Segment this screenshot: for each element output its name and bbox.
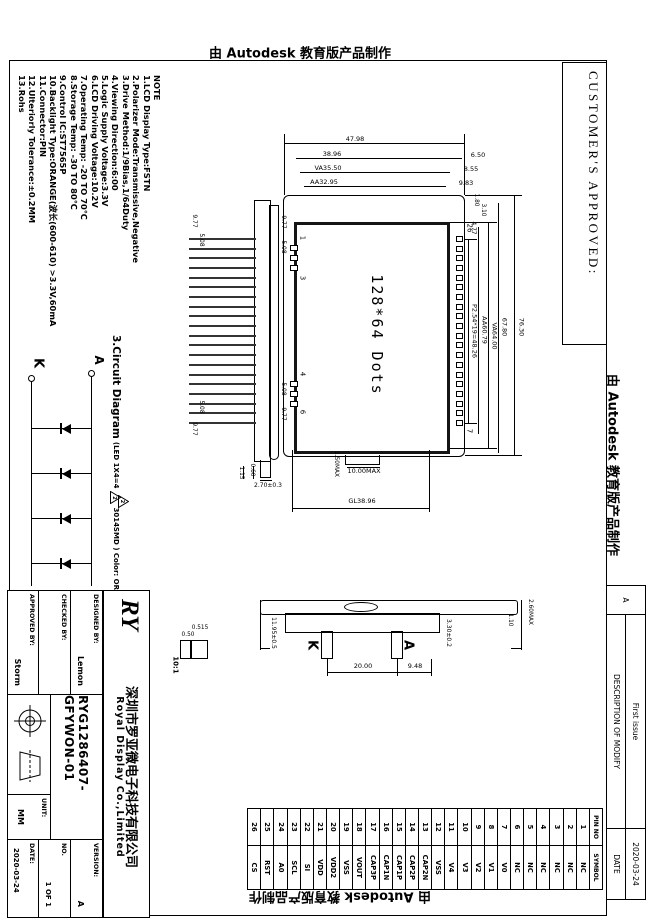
- pin-number: 23: [288, 809, 300, 846]
- pin-number: 8: [485, 809, 497, 846]
- lcd-pad: [290, 381, 298, 387]
- pin-symbol: CAP1P: [393, 846, 405, 889]
- dim-line: [285, 143, 465, 144]
- autodesk-watermark-top: 由 Autodesk 教育版产品制作: [605, 374, 624, 556]
- led-diode-icon: [62, 559, 71, 569]
- dim-label-aa_w: AA60.79: [481, 316, 488, 344]
- note-line: 11.Connector:PIN: [37, 75, 47, 495]
- backlight-oval-cutout: [344, 602, 378, 612]
- dim-line: [521, 600, 522, 650]
- approved-by-label: APPROVED BY:: [28, 594, 35, 646]
- projection-symbol-icon: [9, 695, 50, 793]
- pin-lead: [189, 344, 256, 346]
- pin-table-header: PIN NO SYMBOL: [589, 809, 602, 889]
- pin-lead: [189, 248, 256, 250]
- title-block: RY 深圳市罗亚微电子科技有限公司 Royal Display Co.,Limi…: [7, 590, 150, 918]
- pin-table-row: 15CAP1P: [392, 809, 405, 889]
- pin-table-row: 11V4: [444, 809, 457, 889]
- note-line: 7.Operating Temp: -20 TO 70℃: [79, 75, 89, 495]
- dim-label-anode: A: [93, 355, 105, 364]
- pin-number: 5: [524, 809, 536, 846]
- pin-table-row: 10V3: [457, 809, 470, 889]
- led-cathode-bar: [61, 558, 63, 569]
- pin-number: 20: [327, 809, 339, 846]
- lcd-pad: [456, 362, 463, 368]
- unit-label: UNIT:: [40, 798, 47, 817]
- pin-table-row: 6NC: [510, 809, 523, 889]
- pin-symbol: V3: [458, 846, 470, 889]
- pin-symbol: A0: [274, 846, 286, 889]
- pin-table-row: 19VSS: [339, 809, 352, 889]
- dim-line: [464, 239, 477, 240]
- lcd-pad: [456, 391, 463, 397]
- lcd-pad: [456, 401, 463, 407]
- dim-label-tab_t: 1.50MAX: [332, 451, 338, 477]
- pin-symbol: NC: [564, 846, 576, 889]
- pin-detail-rect-1: [190, 640, 208, 659]
- pin-symbol: V0: [498, 846, 510, 889]
- pin-number: 6: [511, 809, 523, 846]
- lcd-pad: [456, 342, 463, 348]
- pin-table-header-symbol: SYMBOL: [590, 846, 602, 889]
- pin-number: 18: [353, 809, 365, 846]
- pin-table-row: 7V0: [497, 809, 510, 889]
- pin-lead: [189, 286, 256, 288]
- pin-symbol: CAP2N: [419, 846, 431, 889]
- dim-label-a: 0.515: [192, 626, 209, 632]
- pin-table-row: 21VDD: [313, 809, 326, 889]
- company-banner: RY 深圳市罗亚微电子科技有限公司 Royal Display Co.,Limi…: [103, 591, 149, 917]
- lcd-pad: [456, 323, 463, 329]
- dim-label-off: 9.48: [408, 663, 422, 670]
- pin-table-row: 24A0: [273, 809, 286, 889]
- dim-label-off2: 8.55: [464, 166, 478, 173]
- dim-line: [398, 672, 432, 673]
- pin-symbol: V1: [485, 846, 497, 889]
- dim-line: [296, 158, 462, 159]
- pin-table-row: 3NC: [549, 809, 562, 889]
- pin-detail-rect-2: [180, 640, 192, 659]
- dim-label-b4: 6: [299, 410, 306, 414]
- pin-lead: [189, 257, 256, 259]
- revision-description-value: First issue: [626, 615, 646, 828]
- dim-line: [429, 450, 430, 512]
- pin-table-row: 17CAP3P: [365, 809, 378, 889]
- pin-table-row: 8V1: [484, 809, 497, 889]
- revision-date-value: 2020-03-24: [626, 829, 646, 899]
- dim-label-a: 9.77: [191, 214, 197, 227]
- lcd-resolution-text: 128*64 Dots: [368, 274, 386, 395]
- pin-symbol: NC: [577, 846, 589, 889]
- dim-line: [468, 239, 469, 424]
- circuit-cathode-terminal: [28, 375, 35, 382]
- pin-table-row: 9V2: [471, 809, 484, 889]
- lcd-pad: [456, 275, 463, 281]
- dim-label-c: 5.08: [198, 400, 204, 413]
- drawing-page: 由 Autodesk 教育版产品制作 由 Autodesk 教育版产品制作 由 …: [0, 0, 650, 920]
- pin-symbol: CS: [248, 846, 260, 889]
- pin-lead: [189, 383, 256, 385]
- dim-line: [465, 455, 522, 456]
- pin-number: 2: [564, 809, 576, 846]
- pin-number: 1: [577, 809, 589, 846]
- pin-lead: [189, 325, 256, 327]
- led-cathode-bar: [61, 468, 63, 479]
- pin-symbol: VOUT: [353, 846, 365, 889]
- pin-number: 19: [340, 809, 352, 846]
- pin-symbol: VSS: [432, 846, 444, 889]
- dim-label-h: 11.95±0.5: [270, 617, 276, 649]
- dim-label-off3: 9.83: [459, 180, 473, 187]
- projection-symbols-cell: [8, 694, 51, 794]
- pin-table-row: 1NC: [576, 809, 589, 889]
- side-view-pcb: [254, 200, 271, 462]
- date-label: DATE:: [28, 843, 35, 864]
- pin-table-row: 12VSS: [431, 809, 444, 889]
- circuit-spec-pre: (LED 1X4=4: [112, 442, 120, 489]
- backlight-housing: [285, 613, 440, 633]
- dim-line: [260, 600, 261, 650]
- pin-table-header-no: PIN NO: [590, 809, 602, 846]
- dim-label-grp2_b: 9.77: [280, 407, 286, 420]
- pin-number: 26: [248, 809, 260, 846]
- dim-line: [450, 448, 497, 449]
- dim-label-b3: 4: [299, 372, 306, 376]
- circuit-title-text: 3.Circuit Diagram: [110, 335, 122, 439]
- pin-lead: [189, 267, 256, 269]
- note-line: 13.Rohs: [16, 75, 26, 495]
- revision-col-date: 2020-03-24 DATE: [607, 829, 645, 899]
- dim-label-grp1_a: 9.77: [280, 215, 286, 228]
- note-line: 2.Polarizer Mode:Transmissive,Negative: [131, 75, 141, 495]
- sheet-no-value: 1 OF 1: [44, 882, 52, 907]
- pin-number: 21: [314, 809, 326, 846]
- dim-label-a: A: [402, 640, 415, 650]
- pin-symbol: CAP2P: [406, 846, 418, 889]
- pin-number: 3: [550, 809, 562, 846]
- pin-lead: [189, 335, 256, 337]
- pin-table-row: 2NC: [563, 809, 576, 889]
- pin-number: 12: [432, 809, 444, 846]
- notes-title: NOTE: [152, 75, 162, 495]
- revision-table: A First issue DESCRIPTION OF MODIFY 2020…: [606, 585, 646, 900]
- pin-table-row: 20VDD2: [326, 809, 339, 889]
- dim-label-pad_pitch: P2.54*19=48.26: [471, 304, 478, 358]
- dim-line: [397, 659, 398, 676]
- dim-label-gl: GL38.96: [348, 498, 375, 505]
- version-cell: VERSION: A: [71, 839, 103, 917]
- part-number: RYG1286407-GFYWON-01: [51, 694, 103, 839]
- pin-symbol: SI: [301, 846, 313, 889]
- pin-symbol: NC: [524, 846, 536, 889]
- pin-lead: [189, 393, 256, 395]
- dim-label-g1: 1.10: [506, 614, 512, 627]
- pin-lead: [189, 277, 256, 279]
- pin-lead: [189, 296, 256, 298]
- sheet-no-label: NO.: [60, 843, 67, 856]
- unit-cell: UNIT: MM: [8, 794, 51, 839]
- circuit-anode-rail: [91, 376, 92, 586]
- pin-number: 4: [537, 809, 549, 846]
- lcd-pad: [456, 255, 463, 261]
- revision-date-header: DATE: [607, 829, 626, 899]
- pin-lead: [189, 364, 256, 366]
- pin-table-row: 13CAP2N: [418, 809, 431, 889]
- pin-symbol: VSS: [340, 846, 352, 889]
- lcd-pad: [290, 265, 298, 271]
- led-cathode-bar: [61, 423, 63, 434]
- dim-line: [328, 672, 398, 673]
- dim-label-cathode: K: [32, 358, 45, 368]
- dim-label-overall_w: 76.30: [518, 318, 525, 337]
- dim-label-pad_off2: 3.10: [479, 204, 485, 217]
- led-diode-icon: [62, 469, 71, 479]
- lcd-pad: [456, 265, 463, 271]
- approved-by-cell: APPROVED BY: Storm: [8, 591, 39, 694]
- dim-label-overall_h: 47.98: [346, 136, 365, 143]
- sheet-no-cell: NO. 1 OF 1: [39, 839, 71, 917]
- pin-number: 9: [472, 809, 484, 846]
- pin-number: 22: [301, 809, 313, 846]
- lcd-pad: [456, 313, 463, 319]
- pin-lead: [189, 354, 256, 356]
- pin-lead: [189, 374, 256, 376]
- lcd-pad: [456, 333, 463, 339]
- dim-label-grp1_b: 5.08: [280, 240, 286, 253]
- lcd-pad: [456, 236, 463, 242]
- dim-label-b: 0.50: [182, 633, 195, 639]
- dim-label-va_h: VA35.50: [314, 165, 341, 172]
- revision-description-header: DESCRIPTION OF MODIFY: [607, 615, 626, 828]
- pin-number: 13: [419, 809, 431, 846]
- lcd-pad: [290, 401, 298, 407]
- dim-label-pad_off1: 1.80: [472, 194, 478, 207]
- pin-symbol: RST: [261, 846, 273, 889]
- pin-table-row: 23SCL: [287, 809, 300, 889]
- dim-line: [327, 659, 328, 676]
- dim-label-tab_w: 10.00MAX: [347, 468, 380, 475]
- triangle-marker-number: 2: [120, 500, 126, 503]
- dim-line: [260, 648, 270, 649]
- revision-col-description: First issue DESCRIPTION OF MODIFY: [607, 615, 645, 829]
- designed-by-label: DESIGNED BY:: [92, 594, 99, 644]
- dim-line: [300, 172, 450, 173]
- pin-number: 17: [366, 809, 378, 846]
- dim-line: [511, 648, 522, 649]
- dim-line: [292, 450, 293, 512]
- dim-label-glass_w2: 67.80: [501, 318, 508, 337]
- dim-label-b: 5.08: [198, 233, 204, 246]
- dim-line: [464, 423, 477, 424]
- lcd-pad: [456, 420, 463, 426]
- approved-by-value: Storm: [13, 659, 22, 686]
- circuit-diagram-title: 3.Circuit Diagram (LED 1X4=4 2 3014SMD )…: [110, 335, 122, 612]
- pin-table-row: 22SI: [300, 809, 313, 889]
- dim-line: [431, 659, 432, 676]
- customer-approved-label: CUSTOMER'S APPROVED:: [585, 71, 601, 276]
- pin-table-row: 4NC: [536, 809, 549, 889]
- designed-by-value: Lemon: [76, 656, 85, 686]
- unit-value: MM: [16, 809, 25, 825]
- date-value: 2020-03-24: [12, 848, 20, 893]
- pin-table-row: 16CAP1N: [379, 809, 392, 889]
- autodesk-watermark-left: 由 Autodesk 教育版产品制作: [209, 43, 391, 62]
- lcd-pad: [456, 352, 463, 358]
- lcd-pad: [456, 381, 463, 387]
- led-diode-icon: [62, 514, 71, 524]
- pin-lead: [189, 422, 256, 424]
- dim-label-g2: 2.60MAX: [526, 599, 532, 625]
- designed-by-cell: DESIGNED BY: Lemon: [71, 591, 103, 694]
- pin-symbol: CAP3P: [366, 846, 378, 889]
- lcd-pad: [290, 255, 298, 261]
- dim-label-grp2_a: 5.08: [280, 382, 286, 395]
- dim-label-top_left: 26: [466, 224, 473, 233]
- dim-line: [304, 186, 446, 187]
- led-diode-icon: [62, 424, 71, 434]
- triangle-marker-number: 2: [112, 496, 118, 499]
- lcd-pad: [456, 410, 463, 416]
- dim-label-off1: 6.50: [471, 152, 485, 159]
- circuit-anode-terminal: [88, 370, 95, 377]
- pin-table-row: 18VOUT: [352, 809, 365, 889]
- checked-by-cell: CHECKED BY:: [39, 591, 71, 694]
- dim-line: [514, 195, 515, 456]
- side-view-extension: [260, 460, 271, 478]
- date-cell: DATE: 2020-03-24: [8, 839, 39, 917]
- lcd-pad: [290, 245, 298, 251]
- dim-label-glass_h: 38.96: [323, 151, 342, 158]
- dim-label-top_right: 7: [466, 429, 473, 433]
- triangle-marker-icon: 2: [119, 495, 130, 508]
- pin-number: 11: [445, 809, 457, 846]
- pin-number: 16: [380, 809, 392, 846]
- lcd-pad: [456, 304, 463, 310]
- dim-label-f: 1.15: [237, 467, 243, 480]
- drawing-sheet: 由 Autodesk 教育版产品制作 由 Autodesk 教育版产品制作 由 …: [0, 0, 650, 920]
- pin-symbol: SCL: [288, 846, 300, 889]
- dim-label-va_w: VA64.00: [491, 322, 498, 349]
- pin-symbol: NC: [537, 846, 549, 889]
- dim-label-t: 3.30±0.2: [445, 619, 451, 647]
- company-name-cn: 深圳市罗亚微电子科技有限公司: [123, 643, 142, 911]
- pin-number: 15: [393, 809, 405, 846]
- led-cathode-bar: [61, 513, 63, 524]
- pin-number: 24: [274, 809, 286, 846]
- autodesk-watermark-right: 由 Autodesk 教育版产品制作: [249, 889, 431, 908]
- revision-rev: A: [607, 586, 645, 614]
- note-line: 5.Logic Supply Voltage:3.3V: [100, 75, 110, 495]
- lcd-pad: [456, 372, 463, 378]
- pin-number: 10: [458, 809, 470, 846]
- dim-label-scale: 10:1: [172, 656, 179, 673]
- dim-label-b2: 3: [299, 276, 306, 280]
- lcd-pad: [456, 284, 463, 290]
- dim-label-aa_h: AA32.95: [310, 179, 338, 186]
- pin-table-row: 26CS: [248, 809, 260, 889]
- company-logo: RY: [115, 599, 143, 631]
- dim-label-b1: 1: [299, 236, 306, 240]
- pin-symbol: V4: [445, 846, 457, 889]
- dim-line: [292, 508, 430, 509]
- dim-label-g: 0.60: [248, 464, 254, 477]
- dim-label-d: 9.77: [191, 422, 197, 435]
- circuit-cathode-rail: [31, 381, 32, 586]
- pin-symbol: VDD2: [327, 846, 339, 889]
- backlight-pin-cathode: [321, 631, 333, 659]
- pin-symbol: VDD: [314, 846, 326, 889]
- pin-symbol: NC: [511, 846, 523, 889]
- pin-table-row: 5NC: [523, 809, 536, 889]
- pin-symbol: CAP1N: [380, 846, 392, 889]
- customer-approved-box: CUSTOMER'S APPROVED:: [562, 62, 607, 345]
- version-value: A: [76, 901, 85, 907]
- dim-label-k: K: [306, 640, 319, 650]
- pin-table-row: 14CAP2P: [405, 809, 418, 889]
- dim-line: [260, 480, 272, 481]
- dim-line: [284, 134, 285, 195]
- company-name-en: Royal Display Co.,Limited: [114, 643, 125, 911]
- lcd-pad: [456, 294, 463, 300]
- lcd-pad: [456, 246, 463, 252]
- fpc-tab: [345, 455, 380, 465]
- pin-number: 25: [261, 809, 273, 846]
- pin-symbol: V2: [472, 846, 484, 889]
- lcd-pad: [290, 391, 298, 397]
- note-line: 10.Backlight Type:ORANGE(波长(600-610) >3.…: [48, 75, 58, 495]
- dim-label-pitch: 20.00: [354, 663, 373, 670]
- pin-symbol: NC: [550, 846, 562, 889]
- pin-table: PIN NO SYMBOL 1NC2NC3NC4NC5NC6NC7V08V19V…: [247, 808, 603, 890]
- revision-col-rev: A: [607, 586, 645, 615]
- pin-lead: [189, 315, 256, 317]
- checked-by-label: CHECKED BY:: [60, 594, 67, 640]
- pin-number: 7: [498, 809, 510, 846]
- pin-number: 14: [406, 809, 418, 846]
- dim-label-e: 2.70±0.3: [254, 483, 282, 489]
- notes-block: NOTE1.LCD Display Type:FSTN2.Polarizer M…: [16, 75, 162, 495]
- pin-lead: [189, 306, 256, 308]
- version-label: VERSION:: [92, 843, 99, 877]
- pin-table-row: 25RST: [260, 809, 273, 889]
- note-line: 1.LCD Display Type:FSTN: [141, 75, 151, 495]
